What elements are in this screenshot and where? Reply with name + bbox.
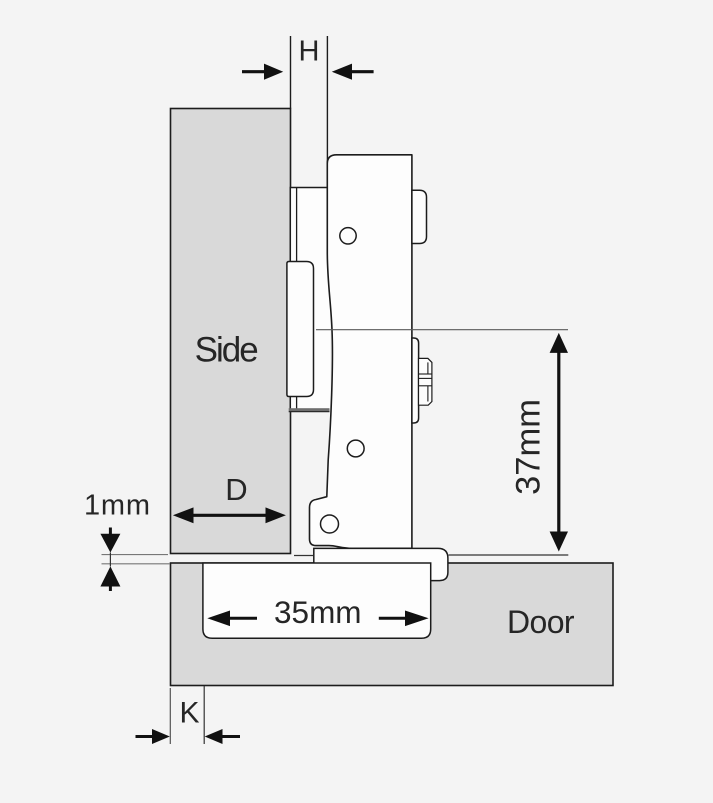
- svg-text:35mm: 35mm: [274, 594, 362, 630]
- svg-text:H: H: [299, 36, 319, 68]
- svg-text:Side: Side: [195, 330, 258, 369]
- svg-text:K: K: [179, 697, 199, 730]
- svg-text:Door: Door: [507, 604, 575, 640]
- svg-text:D: D: [225, 472, 247, 507]
- svg-text:37mm: 37mm: [510, 399, 548, 495]
- svg-text:1mm: 1mm: [84, 490, 151, 522]
